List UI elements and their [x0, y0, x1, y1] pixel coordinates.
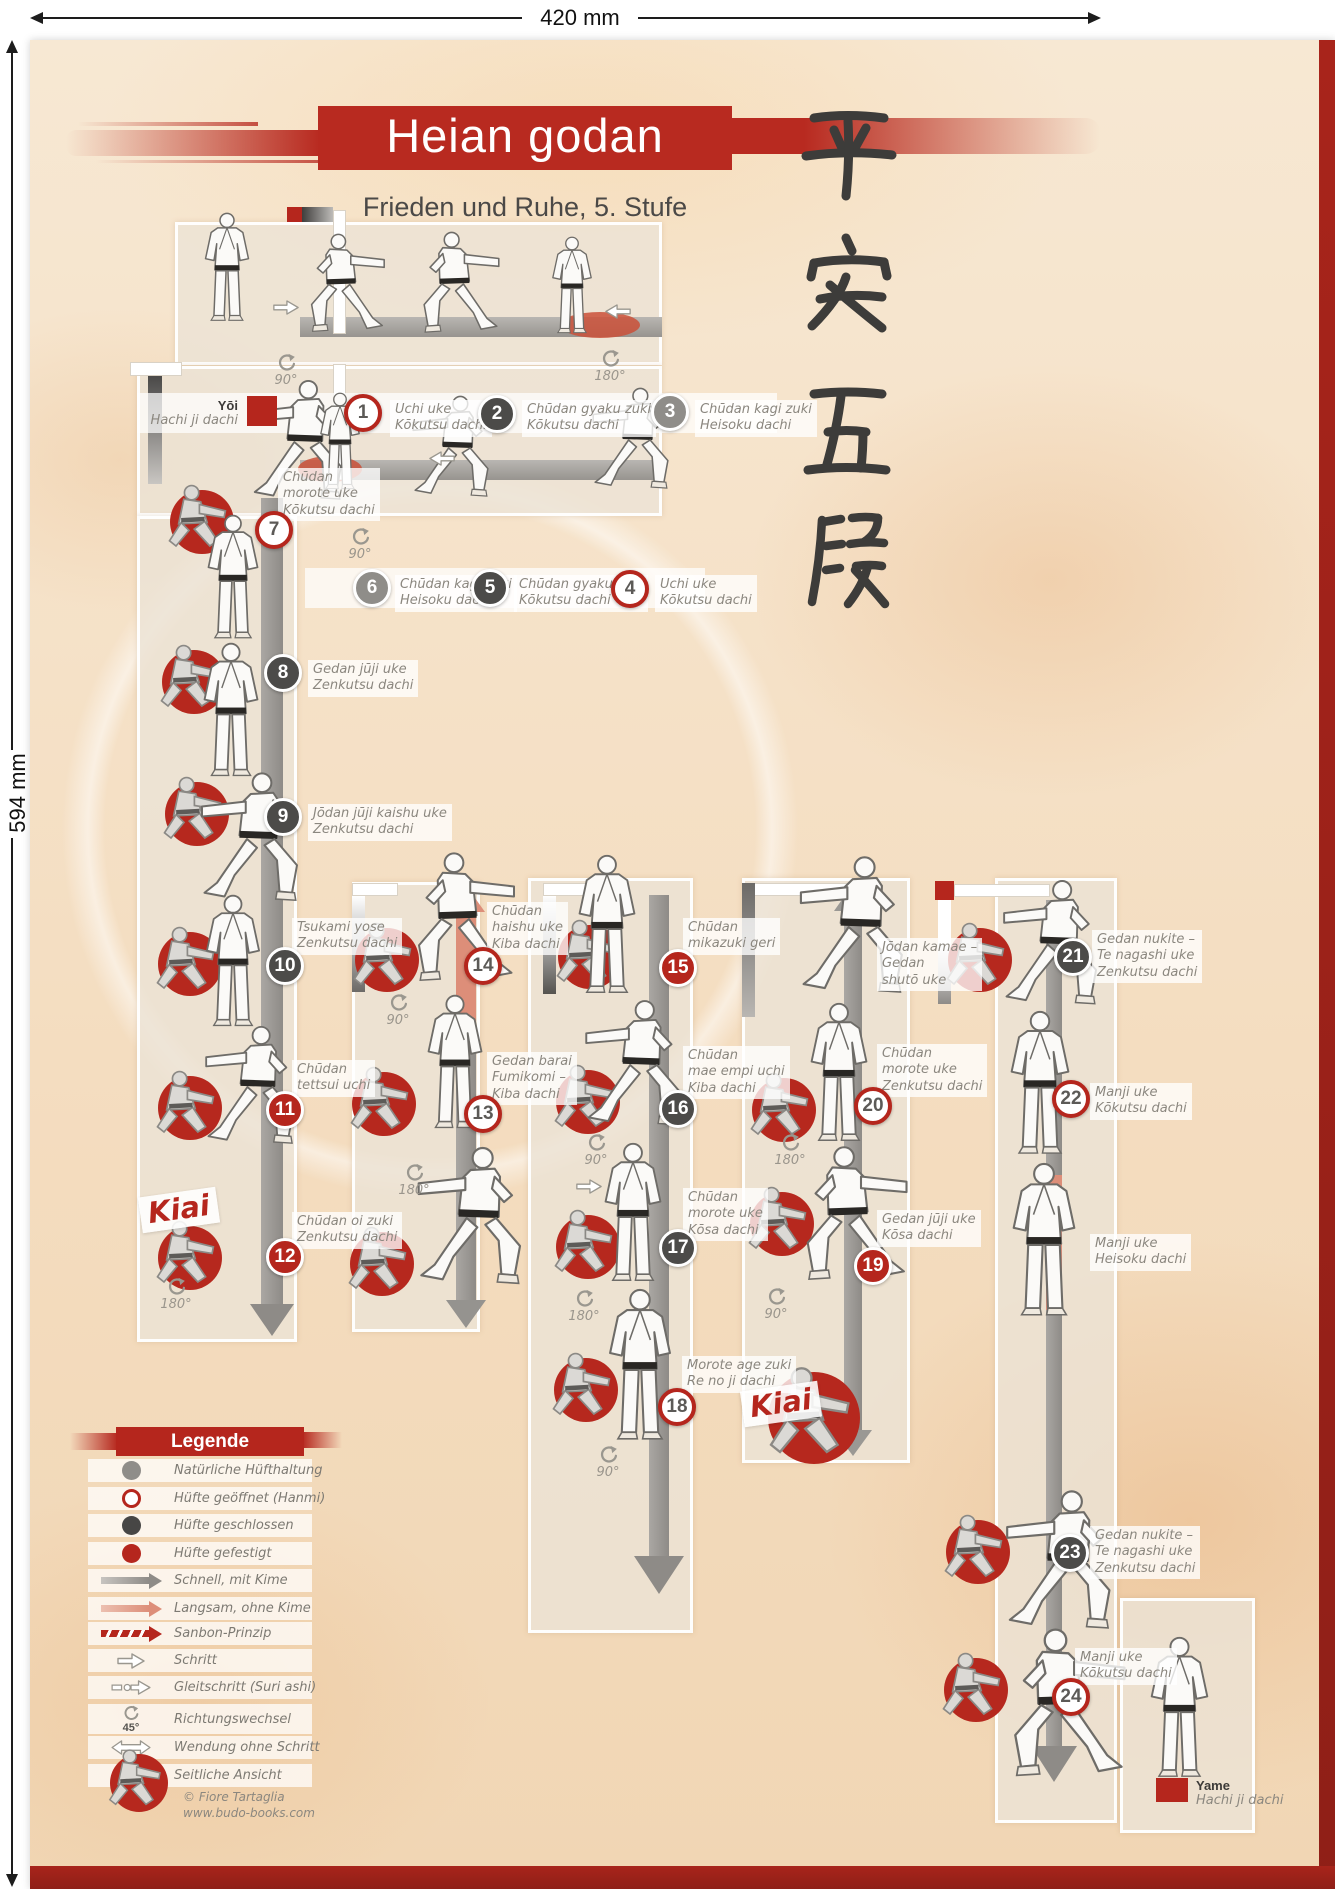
- karateka-yoi: [206, 213, 249, 320]
- rotation-text: 180°: [398, 1183, 429, 1198]
- enbusen-lbar-row2-h: [130, 362, 182, 376]
- arrowhead-down-column-b: [634, 1556, 684, 1594]
- note-label-jodan-kamae: Jōdan kamae –Gedanshutō uke: [877, 938, 982, 991]
- legend-row: Hüfte geschlossen: [88, 1514, 312, 1537]
- label-line: Jōdan kamae –: [882, 940, 977, 956]
- rotation-90: 90°: [336, 526, 384, 562]
- poster-edge-right: [1319, 40, 1335, 1889]
- website-credit: www.budo-books.com: [183, 1806, 315, 1820]
- legend-row: Hüfte geöffnet (Hanmi): [88, 1487, 312, 1510]
- label-line: Zenkutsu dachi: [882, 1079, 982, 1095]
- height-dimension-label: 594 mm: [5, 749, 31, 837]
- step-marker-15: 15: [659, 949, 697, 987]
- yame-name: Yame: [1196, 1778, 1306, 1793]
- label-line: Te nagashi uke: [1097, 948, 1197, 964]
- step-arrow-icon: [606, 305, 630, 318]
- label-line: Zenkutsu dachi: [1095, 1561, 1195, 1577]
- label-line: Gedan jūji uke: [313, 662, 413, 678]
- step-label-9: Jōdan jūji kaishu ukeZenkutsu dachi: [308, 804, 452, 841]
- legend-row: Hüfte gefestigt: [88, 1542, 312, 1565]
- legend-label: Langsam, ohne Kime: [174, 1601, 311, 1616]
- rotation-90: 90°: [262, 352, 310, 388]
- step-marker-18: 18: [658, 1388, 696, 1426]
- label-line: Chūdan: [688, 1048, 785, 1064]
- rotation-text: 180°: [774, 1153, 805, 1168]
- hip-natural-icon: [88, 1461, 174, 1480]
- label-line: morote uke: [882, 1062, 982, 1078]
- legend-row: Schritt: [88, 1649, 312, 1672]
- label-line: Kiba dachi: [492, 937, 563, 953]
- start-marker-square-row1: [287, 207, 302, 222]
- step-marker-13: 13: [464, 1095, 502, 1133]
- label-line: Manji uke: [1095, 1236, 1186, 1252]
- step-marker-12: 12: [266, 1238, 304, 1276]
- step-arrow-icon: [274, 301, 298, 314]
- label-line: haishu uke: [492, 920, 563, 936]
- label-line: Manji uke: [1095, 1085, 1187, 1101]
- label-line: Kōkutsu dachi: [1095, 1101, 1187, 1117]
- rotation-text: 90°: [764, 1307, 787, 1322]
- step-marker-7: 7: [255, 511, 293, 549]
- dim-line-left-top: [11, 52, 13, 750]
- step-label-21: Gedan nukite –Te nagashi ukeZenkutsu dac…: [1092, 930, 1202, 983]
- legend-label: Gleitschritt (Suri ashi): [174, 1680, 316, 1695]
- step-marker-14: 14: [464, 947, 502, 985]
- legend-label: Wendung ohne Schritt: [174, 1740, 320, 1755]
- legend-label: Natürliche Hüfthaltung: [174, 1463, 322, 1478]
- step-label-15: Chūdanmikazuki geri: [683, 918, 780, 955]
- step-marker-24: 24: [1052, 1678, 1090, 1716]
- step-marker-10: 10: [266, 947, 304, 985]
- step-marker-5: 5: [471, 569, 509, 607]
- legend-row: Natürliche Hüfthaltung: [88, 1459, 312, 1482]
- legend-label: Schnell, mit Kime: [174, 1573, 288, 1588]
- karateka-step15: [580, 856, 635, 992]
- yoi-start-square: [247, 396, 277, 426]
- label-line: Manji uke: [1080, 1650, 1172, 1666]
- label-line: Kōkutsu dachi: [283, 503, 375, 519]
- label-line: Chūdan: [882, 1046, 982, 1062]
- banner-brush-tail-left: [66, 130, 320, 156]
- rotation-180: 180°: [152, 1276, 200, 1312]
- label-line: morote uke: [688, 1206, 763, 1222]
- label-line: Kōkutsu dachi: [395, 418, 487, 434]
- label-line: Gedan: [882, 956, 977, 972]
- rotation-text: 90°: [348, 547, 371, 562]
- arrowhead-down-column-a: [446, 1300, 486, 1328]
- rotation-text: 90°: [584, 1153, 607, 1168]
- step-marker-3: 3: [651, 393, 689, 431]
- label-line: Gedan nukite –: [1095, 1528, 1195, 1544]
- dim-line-top-left: [42, 17, 522, 19]
- step-marker-6: 6: [353, 569, 391, 607]
- step-label-3: Chūdan kagi zukiHeisoku dachi: [695, 400, 817, 437]
- step-label-11: Chūdantettsui uchi: [292, 1060, 375, 1097]
- step-arrow-icon: [88, 1652, 174, 1670]
- dim-arrowhead-down: [6, 1874, 18, 1887]
- legend-banner-tail-right: [302, 1432, 342, 1448]
- legend-label: Hüfte geschlossen: [174, 1518, 294, 1533]
- label-line: Tsukami yose: [297, 920, 397, 936]
- step-label-14: Chūdanhaishu ukeKiba dachi: [487, 902, 568, 955]
- rotation-text: 90°: [274, 373, 297, 388]
- yame-end-square: [1156, 1778, 1188, 1802]
- yoi-stance: Hachi ji dachi: [151, 413, 238, 428]
- poster-edge-bottom: [30, 1866, 1335, 1889]
- rotation-text: 180°: [594, 369, 625, 384]
- enbusen-lbar-a-h: [352, 883, 398, 896]
- rotation-180: 180°: [560, 1288, 608, 1324]
- karateka-step3: [553, 237, 591, 332]
- karateka-step1: [312, 234, 385, 331]
- label-line: Gedan barai: [492, 1054, 572, 1070]
- slide-step-arrow-icon: [88, 1679, 174, 1696]
- label-line: Zenkutsu dachi: [313, 678, 413, 694]
- calligraphy-heian-godan: [792, 96, 902, 636]
- direction-change-icon: 45°: [88, 1704, 174, 1734]
- label-line: Chūdan: [492, 904, 563, 920]
- rotation-180: 180°: [766, 1132, 814, 1168]
- step-label-12: Chūdan oi zukiZenkutsu dachi: [292, 1212, 402, 1249]
- rotation-90: 90°: [752, 1286, 800, 1322]
- rotation-180: 180°: [390, 1162, 438, 1198]
- label-line: Chūdan oi zuki: [297, 1214, 397, 1230]
- step-label-4: Uchi ukeKōkutsu dachi: [655, 575, 757, 612]
- label-line: Kiba dachi: [688, 1081, 785, 1097]
- karateka-step20: [812, 1004, 867, 1140]
- rotation-text: 90°: [386, 1013, 409, 1028]
- step-label-2: Chūdan gyaku zukiKōkutsu dachi: [522, 400, 656, 437]
- label-line: Chūdan: [297, 1062, 370, 1078]
- label-line: Fumikomi –: [492, 1070, 572, 1086]
- karateka-step2: [424, 232, 499, 332]
- sanbon-arrow-icon: [88, 1626, 174, 1642]
- yame-stance: Hachi ji dachi: [1196, 1793, 1283, 1808]
- step-marker-19: 19: [854, 1247, 892, 1285]
- legend-row: Gleitschritt (Suri ashi): [88, 1676, 312, 1699]
- legend-label: Seitliche Ansicht: [174, 1768, 282, 1783]
- dim-arrowhead-up: [6, 40, 18, 53]
- label-line: Zenkutsu dachi: [1097, 965, 1197, 981]
- label-line: Chūdan gyaku zuki: [527, 402, 651, 418]
- legend-label: Hüfte geöffnet (Hanmi): [174, 1491, 325, 1506]
- step-label-16: Chūdanmae empi uchiKiba dachi: [683, 1046, 790, 1099]
- label-line: Uchi uke: [395, 402, 487, 418]
- hip-closed-icon: [88, 1516, 174, 1535]
- step-label-20: Chūdanmorote ukeZenkutsu dachi: [877, 1044, 987, 1097]
- rotation-90: 90°: [572, 1132, 620, 1168]
- label-line: Chūdan: [688, 1190, 763, 1206]
- karateka-step10: [202, 773, 297, 900]
- rotation-text: 180°: [568, 1309, 599, 1324]
- label-line: morote uke: [283, 486, 375, 502]
- label-line: Te nagashi uke: [1095, 1544, 1195, 1560]
- legend-title: Legende: [116, 1427, 304, 1456]
- rotation-90: 90°: [584, 1444, 632, 1480]
- step-marker-1: 1: [344, 394, 382, 432]
- step-label-10: Tsukami yoseZenkutsu dachi: [292, 918, 402, 955]
- label-line: Kōsa dachi: [688, 1223, 763, 1239]
- label-line: Morote age zuki: [687, 1358, 791, 1374]
- rotation-180: 180°: [586, 348, 634, 384]
- rotation-90: 90°: [374, 992, 422, 1028]
- rotation-text: 90°: [596, 1465, 619, 1480]
- label-line: tettsui uchi: [297, 1078, 370, 1094]
- hip-set-icon: [88, 1544, 174, 1563]
- step-marker-4: 4: [611, 570, 649, 608]
- label-line: Uchi uke: [660, 577, 752, 593]
- author-credit: © Fiore Tartaglia: [183, 1790, 285, 1804]
- label-line: Chūdan kagi zuki: [700, 402, 812, 418]
- step-marker-17: 17: [659, 1229, 697, 1267]
- step-marker-21: 21: [1054, 938, 1092, 976]
- step-marker-8: 8: [264, 654, 302, 692]
- banner-brush-streak-1: [78, 122, 258, 126]
- label-line: mikazuki geri: [688, 936, 775, 952]
- slow-arrow-icon: [88, 1601, 174, 1617]
- step-arrow-icon: [577, 1180, 601, 1193]
- label-line: Chūdan: [283, 470, 375, 486]
- arrowhead-left-column: [250, 1304, 294, 1336]
- label-line: Gedan jūji uke: [882, 1212, 976, 1228]
- label-line: Heisoku dachi: [700, 418, 812, 434]
- label-line: Gedan nukite –: [1097, 932, 1197, 948]
- step-label-19: Gedan jūji ukeKōsa dachi: [877, 1210, 981, 1247]
- step-marker-9: 9: [264, 798, 302, 836]
- dim-line-top-right: [638, 17, 1090, 19]
- step-marker-23: 23: [1051, 1534, 1089, 1572]
- width-dimension-label: 420 mm: [524, 5, 636, 31]
- legend-row: 45° Richtungswechsel: [88, 1704, 312, 1734]
- label-line: Zenkutsu dachi: [297, 1230, 397, 1246]
- poster-page: 420 mm 594 mm Heian godan Frieden und Ru…: [0, 0, 1335, 1889]
- legend-banner-tail-left: [70, 1433, 118, 1450]
- step-label-13: Gedan baraiFumikomi –Kiba dachi: [487, 1052, 577, 1105]
- yoi-name: Yōi: [150, 398, 238, 413]
- dim-arrowhead-left: [30, 12, 43, 24]
- legend-label: Hüfte gefestigt: [174, 1546, 271, 1561]
- fast-arrow-icon: [88, 1573, 174, 1589]
- step-marker-16: 16: [659, 1090, 697, 1128]
- kata-subtitle: Frieden und Ruhe, 5. Stufe: [318, 192, 732, 223]
- side-view-legend-figure: [110, 1754, 168, 1812]
- step-arrow-icon: [430, 452, 454, 465]
- start-marker-square-column-d: [935, 881, 954, 900]
- step-label-1: Uchi ukeKōkutsu dachi: [390, 400, 492, 437]
- label-line: shutō uke: [882, 973, 977, 989]
- label-line: Heisoku dachi: [1095, 1252, 1186, 1268]
- label-line: Kōkutsu dachi: [660, 593, 752, 609]
- legend-label: Schritt: [174, 1653, 217, 1668]
- label-line: Zenkutsu dachi: [313, 822, 447, 838]
- label-line: Kiba dachi: [492, 1087, 572, 1103]
- step-marker-22: 22: [1052, 1080, 1090, 1118]
- karateka-step9: [205, 644, 258, 776]
- banner-brush-tail-right: [730, 118, 1100, 154]
- legend-label: Sanbon-Prinzip: [174, 1626, 271, 1641]
- label-line: Kōkutsu dachi: [527, 418, 651, 434]
- kata-title: Heian godan: [318, 108, 732, 163]
- label-line: Jōdan jūji kaishu uke: [313, 806, 447, 822]
- note-label-manji-heisoku: Manji ukeHeisoku dachi: [1090, 1234, 1191, 1271]
- dim-arrowhead-right: [1088, 12, 1101, 24]
- karateka-step11: [207, 896, 259, 1026]
- step-label-24: Manji ukeKōkutsu dachi: [1075, 1648, 1177, 1685]
- label-line: mae empi uchi: [688, 1064, 785, 1080]
- yoi-label: Yōi Hachi ji dachi: [150, 398, 238, 428]
- step-label-23: Gedan nukite –Te nagashi ukeZenkutsu dac…: [1090, 1526, 1200, 1579]
- step-label-22: Manji ukeKōkutsu dachi: [1090, 1083, 1192, 1120]
- legend-row: Sanbon-Prinzip: [88, 1622, 312, 1645]
- dim-line-left-bottom: [11, 838, 13, 1874]
- karateka-manji-heisoku: [1014, 1164, 1075, 1315]
- step-label-7: Chūdanmorote ukeKōkutsu dachi: [278, 468, 380, 521]
- rotation-text: 180°: [160, 1297, 191, 1312]
- legend-row: Langsam, ohne Kime: [88, 1597, 312, 1620]
- hip-open-icon: [88, 1489, 174, 1508]
- label-line: Chūdan: [688, 920, 775, 936]
- step-label-17: Chūdanmorote ukeKōsa dachi: [683, 1188, 768, 1241]
- yame-label: Yame Hachi ji dachi: [1196, 1778, 1306, 1808]
- step-label-8: Gedan jūji ukeZenkutsu dachi: [308, 660, 418, 697]
- karateka-step8: [208, 516, 257, 638]
- step-marker-2: 2: [478, 395, 516, 433]
- step-marker-11: 11: [266, 1091, 304, 1129]
- step-marker-20: 20: [854, 1087, 892, 1125]
- label-line: Zenkutsu dachi: [297, 936, 397, 952]
- direction-change-angle: 45°: [123, 1722, 140, 1734]
- label-line: Kōsa dachi: [882, 1228, 976, 1244]
- legend-row: Schnell, mit Kime: [88, 1569, 312, 1592]
- banner-brush-streak-2: [96, 160, 326, 163]
- label-line: Kōkutsu dachi: [1080, 1666, 1172, 1682]
- legend-label: Richtungswechsel: [174, 1712, 291, 1727]
